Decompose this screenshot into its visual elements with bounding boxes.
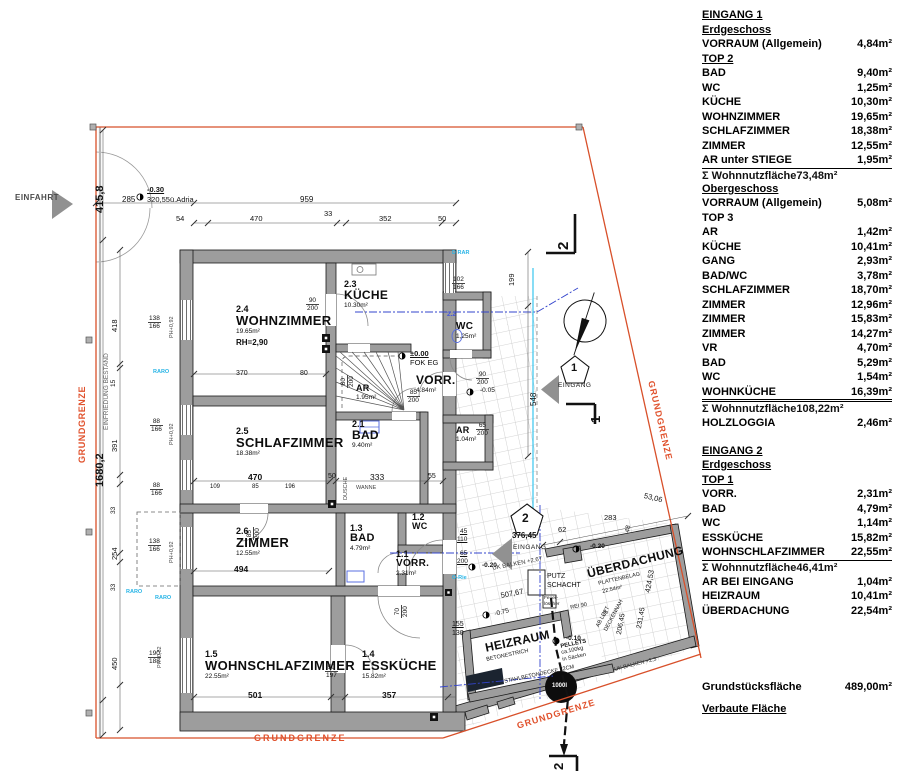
legend-row: Erdgeschoss	[702, 458, 892, 473]
legend-value: 2,31m²	[857, 487, 892, 502]
plan-text: 507,67	[500, 588, 524, 600]
plan-text: 415,8	[95, 185, 107, 213]
legend-value: 16,39m²	[851, 385, 892, 400]
legend-row: AR1,42m²	[702, 225, 892, 240]
plan-text: 391	[111, 439, 119, 452]
legend-row: Grundstücksfläche489,00m²	[702, 680, 892, 695]
room-label: 2.3KÜCHE10.30m²	[344, 280, 388, 310]
plan-text: 55	[428, 473, 436, 480]
legend-row: ZIMMER12,96m²	[702, 298, 892, 313]
legend-row: Obergeschoss	[702, 182, 892, 197]
legend-label: BAD/WC	[702, 269, 747, 284]
legend-label: EINGANG 2	[702, 444, 763, 459]
dim-fraction: 65200	[476, 422, 489, 437]
legend-label: SCHLAFZIMMER	[702, 283, 790, 298]
legend-label: GANG	[702, 254, 735, 269]
dim-fraction: 88166	[150, 482, 163, 497]
plan-text: Feuer-	[544, 596, 558, 601]
legend-row: Σ Wohnnutzfläche46,41m²	[702, 561, 837, 576]
plan-text: 22.54m²	[602, 585, 623, 595]
room-label: 1.1VORR.2.31m²	[396, 550, 429, 578]
legend-row: SCHLAFZIMMER18,38m²	[702, 124, 892, 139]
legend-label: Obergeschoss	[702, 182, 778, 197]
legend-row: WOHNKÜCHE16,39m²	[702, 385, 892, 403]
plan-text: 424,53	[644, 569, 656, 593]
grundgrenze-label-bottomright: GRUNDGRENZE	[516, 698, 597, 731]
legend-gap	[702, 618, 892, 680]
legend-value: 18,38m²	[851, 124, 892, 139]
legend-label: Σ Wohnnutzfläche	[702, 169, 796, 184]
room-label: 2.4WOHNZIMMER19.65m²RH=2,90	[236, 305, 331, 347]
legend-value: 1,95m²	[857, 153, 892, 168]
plan-text: 200	[457, 559, 468, 566]
plan-text: 33	[324, 210, 332, 218]
legend-row: BAD/WC3,78m²	[702, 269, 892, 284]
legend-value: 14,27m²	[851, 327, 892, 342]
legend-label: ZIMMER	[702, 312, 745, 327]
area-summary-rows: EINGANG 1ErdgeschossVORRAUM (Allgemein)4…	[702, 8, 892, 716]
legend-value: 1,54m²	[857, 370, 892, 385]
plan-text: EINFRIEDUNG BESTAND	[104, 353, 111, 430]
legend-row: EINGANG 1	[702, 8, 892, 23]
area-summary-panel: EINGANG 1ErdgeschossVORRAUM (Allgemein)4…	[702, 8, 892, 716]
legend-label: VR	[702, 341, 717, 356]
legend-value: 46,41m²	[796, 561, 837, 576]
room-label: 1.3BAD4.79m²	[350, 524, 375, 553]
plan-text: 501	[248, 691, 262, 700]
plan-text: RARO	[126, 590, 142, 596]
plan-text: 470	[250, 215, 263, 223]
legend-value: 10,41m²	[851, 240, 892, 255]
legend-row: TOP 1	[702, 473, 892, 488]
plan-text: 548	[530, 393, 538, 406]
legend-label: EINGANG 1	[702, 8, 763, 23]
dim-fraction: 70200	[394, 605, 409, 618]
dim-fraction: 90200	[476, 371, 489, 386]
entrance-2-number: 2	[522, 512, 529, 525]
legend-row: WC1,54m²	[702, 370, 892, 385]
legend-label: WC	[702, 81, 720, 96]
legend-value: 12,96m²	[851, 298, 892, 313]
plan-text: 285	[122, 196, 135, 204]
legend-label: Erdgeschoss	[702, 23, 771, 38]
plan-text: 2.2	[447, 312, 456, 319]
legend-label: VORRAUM (Allgemein)	[702, 196, 822, 211]
legend-value: 73,48m²	[796, 169, 837, 184]
plan-text: 50	[328, 473, 336, 480]
legend-label: HEIZRAUM	[702, 589, 760, 604]
legend-value: 10,41m²	[851, 589, 892, 604]
plan-text: PH+0,92	[170, 316, 176, 338]
legend-row: WC1,25m²	[702, 81, 892, 96]
room-label: AR1.95m²	[356, 384, 376, 402]
grundgrenze-label-bottom: GRUNDGRENZE	[254, 734, 347, 743]
legend-value: 489,00m²	[845, 680, 892, 695]
legend-label: SCHLAFZIMMER	[702, 124, 790, 139]
plan-text: 283	[604, 514, 617, 522]
plan-text: 352	[379, 215, 392, 223]
legend-value: 1,04m²	[857, 575, 892, 590]
legend-row: TOP 3	[702, 211, 892, 226]
plan-text: PUTZ	[547, 573, 565, 580]
legend-value: 108,22m²	[796, 402, 843, 417]
plan-text: 45	[460, 529, 467, 536]
legend-label: KÜCHE	[702, 95, 741, 110]
legend-label: KÜCHE	[702, 240, 741, 255]
einfahrt-label: EINFAHRT	[15, 194, 59, 202]
plan-text: 85	[252, 484, 259, 490]
legend-label: TOP 1	[702, 473, 733, 488]
legend-label: Verbaute Fläche	[702, 702, 786, 717]
legend-row: BAD9,40m²	[702, 66, 892, 81]
legend-value: 4,84m²	[857, 37, 892, 52]
legend-label: ZIMMER	[702, 139, 745, 154]
legend-row: WC1,14m²	[702, 516, 892, 531]
plan-text: -0.75	[494, 608, 510, 618]
plan-text: PH+0,92	[170, 423, 176, 445]
legend-row: Verbaute Fläche	[702, 702, 892, 717]
legend-label: AR BEI EINGANG	[702, 575, 794, 590]
plan-text: 50	[438, 215, 446, 223]
plan-text: 109	[210, 484, 220, 490]
legend-row: AR unter STIEGE1,95m²	[702, 153, 892, 169]
dim-fraction: 138166	[148, 538, 161, 553]
legend-row: ZIMMER12,55m²	[702, 139, 892, 154]
legend-value: 10,30m²	[851, 95, 892, 110]
legend-row: WOHNSCHLAFZIMMER22,55m²	[702, 545, 892, 561]
legend-label: WOHNZIMMER	[702, 110, 780, 125]
entrance-1-number: 1	[571, 363, 577, 375]
legend-gap	[702, 431, 892, 444]
plan-text: 199	[508, 273, 516, 286]
plan-text: löscher	[544, 602, 559, 607]
legend-row: ZIMMER15,83m²	[702, 312, 892, 327]
legend-label: ESSKÜCHE	[702, 531, 763, 546]
legend-row: BAD4,79m²	[702, 502, 892, 517]
legend-value: 1,42m²	[857, 225, 892, 240]
legend-row: KÜCHE10,41m²	[702, 240, 892, 255]
legend-label: AR	[702, 225, 718, 240]
legend-label: BAD	[702, 356, 726, 371]
eingang1-label: EINGANG	[558, 383, 591, 390]
legend-gap	[702, 695, 892, 702]
plan-text: 33	[111, 584, 118, 591]
legend-value: 15,83m²	[851, 312, 892, 327]
eingang2-label: EINGANG	[513, 545, 546, 552]
legend-label: TOP 2	[702, 52, 733, 67]
legend-label: HOLZLOGGIA	[702, 416, 775, 431]
legend-value: 4,70m²	[857, 341, 892, 356]
legend-label: VORRAUM (Allgemein)	[702, 37, 822, 52]
plan-text: 333	[370, 473, 384, 482]
legend-row: BAD5,29m²	[702, 356, 892, 371]
room-label: AR1.04m²	[456, 426, 476, 444]
plan-text: 33	[111, 507, 118, 514]
room-label: VORR.4.84m²	[416, 374, 456, 395]
legend-row: ESSKÜCHE15,82m²	[702, 531, 892, 546]
legend-row: TOP 2	[702, 52, 892, 67]
legend-value: 3,78m²	[857, 269, 892, 284]
plan-text: 65	[460, 551, 467, 558]
legend-value: 4,79m²	[857, 502, 892, 517]
plan-text: 959	[300, 196, 313, 204]
plan-text: DUSCHE	[344, 477, 350, 500]
legend-row: WOHNZIMMER19,65m²	[702, 110, 892, 125]
dim-fraction: 138166	[148, 315, 161, 330]
plan-text: 370	[236, 370, 248, 377]
tank-label: 1000l	[552, 683, 567, 689]
legend-label: Erdgeschoss	[702, 458, 771, 473]
legend-row: SCHLAFZIMMER18,70m²	[702, 283, 892, 298]
legend-label: WC	[702, 516, 720, 531]
plan-text: -0.05	[480, 388, 495, 395]
grundgrenze-label-right: GRUNDGRENZE	[646, 380, 674, 462]
room-label: 2.5SCHLAFZIMMER18.38m²	[236, 427, 344, 458]
legend-label: BAD	[702, 502, 726, 517]
plan-text: 231,45	[636, 607, 647, 629]
plan-text: 196	[285, 484, 295, 490]
plan-text: RARO	[155, 596, 171, 602]
room-label: 1.5WOHNSCHLAFZIMMER22.55m²	[205, 650, 355, 681]
legend-row: VORRAUM (Allgemein)4,84m²	[702, 37, 892, 52]
legend-value: 12,55m²	[851, 139, 892, 154]
legend-value: 9,40m²	[857, 66, 892, 81]
plan-text: RARO	[153, 370, 169, 376]
legend-label: WOHNKÜCHE	[702, 385, 776, 400]
plan-text: 418	[111, 319, 119, 332]
plan-text: 1680,2	[95, 453, 107, 487]
room-label: 2.1BAD9.40m²	[352, 420, 379, 450]
legend-row: Σ Wohnnutzfläche108,22m²	[702, 402, 844, 417]
legend-value: 2,46m²	[857, 416, 892, 431]
dim-fraction: 102166	[452, 276, 465, 291]
legend-value: 18,70m²	[851, 283, 892, 298]
legend-value: 19,65m²	[851, 110, 892, 125]
legend-label: WC	[702, 370, 720, 385]
plan-text: 376,45	[512, 532, 536, 540]
plan-text: 110	[457, 537, 467, 544]
plan-text: 48	[625, 525, 633, 533]
legend-label: ÜBERDACHUNG	[702, 604, 789, 619]
legend-label: TOP 3	[702, 211, 733, 226]
section-mark-2-bottom: 2	[552, 763, 566, 770]
legend-label: Grundstücksfläche	[702, 680, 802, 695]
dim-fraction: 80200	[340, 375, 355, 388]
legend-row: AR BEI EINGANG1,04m²	[702, 575, 892, 590]
legend-label: Σ Wohnnutzfläche	[702, 561, 796, 576]
legend-row: HOLZLOGGIA2,46m²	[702, 416, 892, 431]
dim-fraction: 190188	[148, 650, 161, 665]
legend-value: 5,29m²	[857, 356, 892, 371]
legend-row: KÜCHE10,30m²	[702, 95, 892, 110]
plan-text: 62	[558, 526, 566, 534]
floorplan-sheet: EINFAHRT415,8-0.30320,55ü.Adria285959544…	[0, 0, 900, 771]
plan-text: 450	[111, 657, 119, 670]
legend-row: Σ Wohnnutzfläche73,48m²	[702, 169, 837, 184]
room-label: WC1,25m²	[456, 322, 476, 341]
plan-text: 494	[234, 565, 248, 574]
legend-row: Erdgeschoss	[702, 23, 892, 38]
legend-row: ZIMMER14,27m²	[702, 327, 892, 342]
legend-value: 5,08m²	[857, 196, 892, 211]
section-mark-1: 1	[589, 416, 603, 423]
plan-text: SCHACHT	[547, 582, 581, 589]
room-label: 1.4ESSKÜCHE15.82m²	[362, 650, 437, 681]
plan-text: UK BALKEN +2,3	[614, 658, 657, 674]
plan-text: -0.20	[590, 544, 605, 551]
plan-text: 357	[382, 691, 396, 700]
legend-row: GANG2,93m²	[702, 254, 892, 269]
plan-text: 130	[452, 630, 464, 637]
plan-text: 80	[300, 370, 308, 377]
plan-text: 320,55ü.Adria	[147, 196, 194, 204]
room-label: 2.6ZIMMER12.55m²	[236, 527, 289, 558]
legend-value: 1,25m²	[857, 81, 892, 96]
plan-annotations: EINFAHRT415,8-0.30320,55ü.Adria285959544…	[0, 0, 700, 771]
legend-label: WOHNSCHLAFZIMMER	[702, 545, 825, 560]
plan-text: WANNE	[356, 486, 376, 492]
legend-row: ÜBERDACHUNG22,54m²	[702, 604, 892, 619]
legend-value: 2,93m²	[857, 254, 892, 269]
legend-label: ZIMMER	[702, 298, 745, 313]
plan-text: FOK EG	[410, 359, 438, 367]
legend-label: Σ Wohnnutzfläche	[702, 402, 796, 417]
plan-text: 470	[248, 473, 262, 482]
legend-value: 22,54m²	[851, 604, 892, 619]
plan-text: 54	[176, 215, 184, 223]
legend-row: HEIZRAUM10,41m²	[702, 589, 892, 604]
plan-text: 155	[452, 621, 464, 628]
plan-text: O-Rie	[452, 576, 467, 582]
plan-text: UK BALKEN +2,67	[492, 556, 543, 572]
plan-text: 15	[111, 380, 118, 387]
plan-text: 53,06	[643, 492, 663, 504]
plan-text: REI 90	[570, 603, 588, 612]
legend-value: 22,55m²	[851, 545, 892, 560]
plan-text: -0.30	[147, 186, 164, 194]
legend-row: EINGANG 2	[702, 444, 892, 459]
plan-text: D RAR	[452, 251, 469, 257]
legend-value: 15,82m²	[851, 531, 892, 546]
legend-row: VR4,70m²	[702, 341, 892, 356]
legend-row: VORR.2,31m²	[702, 487, 892, 502]
legend-label: AR unter STIEGE	[702, 153, 792, 168]
legend-label: BAD	[702, 66, 726, 81]
legend-value: 1,14m²	[857, 516, 892, 531]
plan-text: ±0.00	[410, 350, 429, 358]
section-mark-2-top: 2	[556, 242, 572, 250]
room-label: 1.2WC	[412, 513, 428, 531]
legend-label: ZIMMER	[702, 327, 745, 342]
dim-fraction: 88166	[150, 418, 163, 433]
plan-text: PH+0,92	[170, 541, 176, 563]
legend-label: VORR.	[702, 487, 737, 502]
legend-row: VORRAUM (Allgemein)5,08m²	[702, 196, 892, 211]
plan-text: 254	[111, 547, 119, 560]
grundgrenze-label-left: GRUNDGRENZE	[78, 386, 87, 463]
